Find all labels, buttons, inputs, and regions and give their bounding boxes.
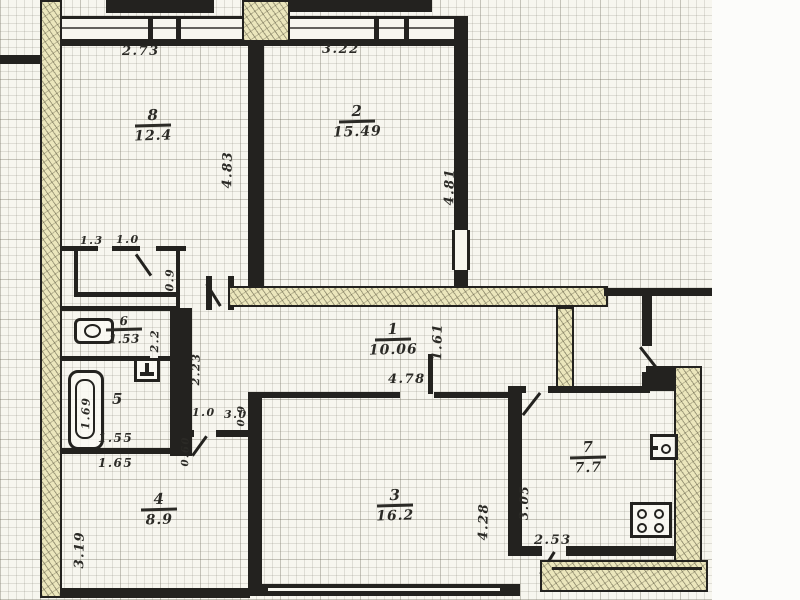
dim-4-78: 4.78 [388, 372, 426, 387]
room-4-number: 4 [141, 490, 178, 512]
room-8-area: 12.4 [118, 127, 188, 145]
room-7-number: 7 [570, 438, 607, 460]
wall-wc-top [62, 306, 176, 311]
window-band-room2 [290, 16, 456, 42]
room-2-area: 15.49 [320, 123, 394, 141]
wall-kitchen-top [508, 386, 526, 393]
window-mullion [148, 16, 153, 42]
room-1-area: 10.06 [360, 341, 426, 359]
dim-1-3: 1.3 [80, 234, 104, 247]
balcony-rail-top-right [290, 0, 432, 12]
dim-3-05: 3.05 [517, 480, 532, 520]
room-8-label: 8 12.4 [118, 105, 189, 145]
bearing-wall-corridor-top [228, 286, 608, 307]
wall-kitchen-bottom [566, 546, 678, 556]
dim-0-9-closet: 0.9 [163, 251, 177, 291]
wall-corridor-bottom [248, 392, 400, 398]
wall-passage-top [216, 430, 250, 437]
scan-margin-right [712, 0, 800, 600]
dim-0-9-passage: 0.9 [236, 386, 248, 426]
dim-2-2: 2.2 [148, 312, 162, 352]
balcony-rail-top-left [106, 0, 214, 13]
exterior-wall-left [40, 0, 62, 598]
wall-kitchen-top [548, 386, 650, 393]
floor-plan-scan: { "plan": { "type": "apartment-floor-pla… [0, 0, 800, 600]
wall-entry-right [642, 296, 652, 346]
dim-2-53: 2.53 [534, 533, 572, 548]
dim-1-0-closet: 1.0 [116, 233, 140, 246]
window-room2-right [452, 230, 470, 270]
room-6-area: 1.53 [96, 331, 152, 346]
room-4-label: 4 8.9 [126, 489, 193, 529]
kitchen-sink-icon [650, 434, 678, 460]
dim-1-0-passage: 1.0 [192, 406, 216, 419]
dim-3-22: 3.22 [322, 42, 360, 57]
dim-4-83: 4.83 [220, 148, 236, 188]
room-6-number: 6 [106, 314, 142, 332]
wall-stub-left [0, 55, 42, 64]
washbasin-icon [134, 358, 160, 382]
room-7-label: 7 7.7 [556, 437, 621, 477]
dim-0-60: 0.60 [180, 426, 192, 466]
wall-room8-room2-divider [248, 42, 264, 288]
balcony-bottom-right [540, 560, 708, 592]
wall-entry-right [642, 372, 652, 388]
bearing-wall-hall-right [556, 307, 574, 389]
window-glass-line [290, 27, 456, 29]
room-3-label: 3 16.2 [360, 485, 431, 525]
wall-closet-left [74, 251, 78, 297]
exterior-wall-kitchen-right [674, 366, 702, 562]
wall-kitchen-left [508, 388, 522, 556]
dim-1-55: 1.55 [98, 431, 133, 445]
wall-pier-top [242, 0, 290, 42]
room-6-label: 6 1.53 [96, 313, 153, 346]
wall-room4-bottom [62, 588, 250, 598]
dim-4-81: 4.81 [442, 165, 458, 205]
room-4-area: 8.9 [126, 511, 192, 529]
room-2-number: 2 [339, 102, 376, 124]
balcony-rail-line [552, 567, 702, 570]
room-1-label: 1 10.06 [360, 319, 427, 359]
dim-1-69: 1.69 [79, 389, 93, 429]
wall-room8-bottom [112, 246, 140, 251]
dim-3-19: 3.19 [72, 528, 88, 568]
door-swing-closet [135, 253, 152, 276]
dim-1-61: 1.61 [430, 320, 446, 360]
room-2-label: 2 15.49 [320, 101, 395, 141]
window-mullion [374, 16, 379, 42]
room-1-number: 1 [375, 320, 412, 342]
room-8-number: 8 [135, 106, 172, 128]
wall-wc-bath-divider [158, 356, 172, 361]
room-3-number: 3 [377, 486, 414, 508]
dim-1-65: 1.65 [98, 456, 133, 470]
wall-closet-bottom [74, 292, 180, 297]
window-room3-bottom [268, 588, 500, 591]
room-3-area: 16.2 [360, 507, 430, 525]
stove-icon [630, 502, 672, 538]
dim-2-73: 2.73 [122, 44, 160, 59]
dim-4-28: 4.28 [476, 500, 492, 540]
dim-2-23: 2.23 [189, 345, 203, 385]
room-5-number: 5 [112, 390, 124, 408]
window-mullion [176, 16, 181, 42]
wall-room8-bottom [156, 246, 186, 251]
door-swing-kitchen [522, 392, 542, 416]
wall-room3-left [248, 396, 262, 592]
wall-top-right [604, 288, 712, 296]
door-swing-room4 [191, 435, 208, 456]
window-mullion [404, 16, 409, 42]
room-7-area: 7.7 [556, 459, 620, 477]
